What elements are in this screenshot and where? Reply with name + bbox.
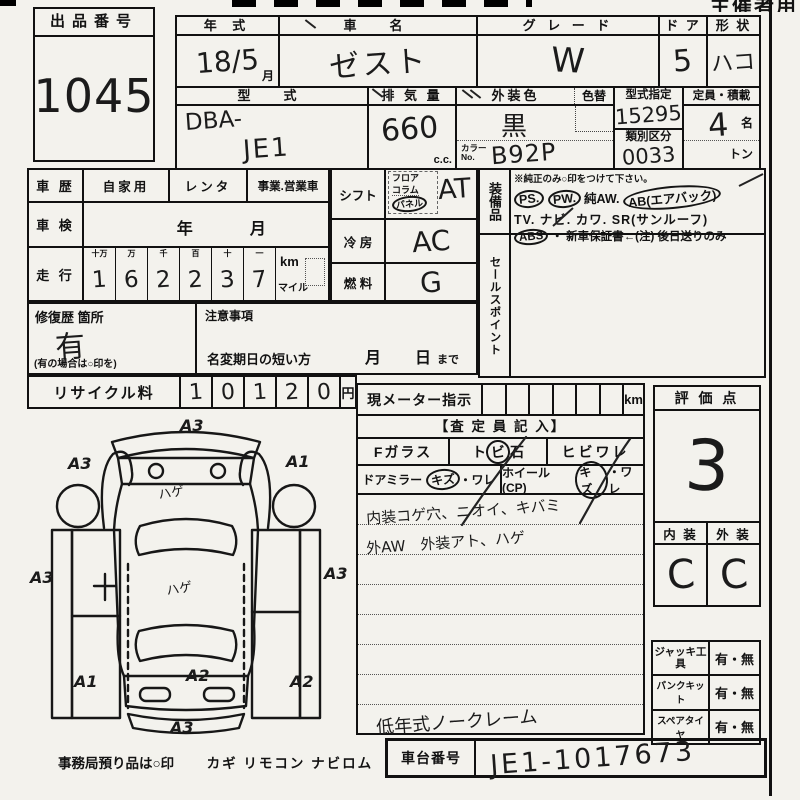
year-unit: 月 (262, 67, 274, 84)
grade-value: W (550, 40, 586, 82)
mileage-digit: 1 (91, 266, 107, 293)
door-value: 5 (672, 43, 693, 79)
color-cell: 外装色 色替 黒 カラーNo. B92P (457, 88, 615, 168)
shape-label: 形 状 (708, 17, 759, 36)
sales-point-box: セールスポイント (478, 235, 766, 378)
meter-label: 現メーター指示 (358, 385, 481, 414)
mileage-unit-checkbox (305, 258, 325, 286)
type-designation-cell: 型式指定 15295 類別区分 0033 (615, 88, 684, 168)
history-label: 車 歴 (29, 170, 84, 201)
history-table: 車 歴 自家用 レンタ 事業.営業車 車 検 年 月 走 行 十万 1 万 6 … (27, 168, 330, 302)
mirror-label: ドアミラー (362, 471, 422, 488)
color-no-value: B92P (490, 138, 557, 170)
color-label: 外装色 (457, 88, 574, 104)
rating-value: 3 (683, 424, 732, 508)
equipment-box: 装備品 ※純正のみ○印をつけて下さい。 PS. PW. 純AW. AB(エアバッ… (478, 168, 766, 235)
load-unit: トン (729, 145, 753, 162)
equipment-row-1: PS. PW. 純AW. AB(エアバック) (514, 186, 761, 209)
mileage-label: 走 行 (29, 248, 84, 300)
inspection-month: 月 (250, 215, 266, 239)
wheel-damage-circled: キズ (574, 459, 610, 500)
mileage-col-label: 十 (212, 248, 243, 259)
mileage-digit-cell: 十万 1 (84, 248, 116, 300)
history-commercial: 事業.営業車 (248, 170, 328, 201)
car-name-value: ゼスト (327, 36, 429, 87)
glass-label: Fガラス (358, 439, 450, 464)
recycle-digit: 0 (220, 379, 236, 405)
history-rental: レンタ (170, 170, 248, 201)
spec-row-1: 年 式 18/5 月 車 名 ゼスト グ レ ー ド W ド ア 5 (175, 15, 761, 88)
glass-opt-circled: ビ (485, 438, 511, 464)
inspection-year: 年 (177, 215, 193, 239)
rating-label: 評 価 点 (655, 387, 759, 411)
color-value: 黒 (501, 106, 527, 143)
recycle-label: リサイクル料 (29, 377, 181, 407)
recycle-digit-cell: 1 (181, 377, 213, 407)
type-designation-label: 型式指定 (615, 88, 682, 102)
mileage-digit-cell: 千 2 (148, 248, 180, 300)
displacement-cell: 排 気 量 660 c.c. (369, 88, 457, 168)
capacity-cell: 定員・積載 4 名 トン (684, 88, 759, 168)
mirror-damage-rest: ・ワレ (460, 471, 496, 488)
lot-label: 出品番号 (35, 9, 153, 37)
displacement-unit: c.c. (434, 154, 452, 166)
mileage-unit-cell: km マイル (276, 248, 328, 300)
year-label: 年 式 (177, 17, 278, 36)
model-value: JE1 (242, 132, 291, 165)
mileage-digit-cell: 百 2 (180, 248, 212, 300)
auction-sheet: 主催者用 出品番号 1045 年 式 18/5 月 車 名 ゼスト グ レ ー … (0, 0, 800, 800)
mileage-digit: 6 (123, 266, 139, 293)
history-private: 自家用 (84, 170, 170, 201)
grade-label: グ レ ー ド (478, 17, 658, 36)
recycle-row: リサイクル料 1 0 1 2 0 円 (27, 375, 357, 409)
caution-box: 注意事項 名変期日の短い方 月 日 まで (197, 302, 478, 375)
recycle-digit: 1 (252, 379, 268, 405)
mileage-digit: 2 (187, 266, 203, 293)
jack-tools-label: ジャッキ工具 (653, 642, 710, 674)
equipment-navi: ナビ. (540, 213, 571, 227)
wheel-cell: ホイール(CP) キズ・ワレ (502, 466, 643, 493)
wheel-damage-rest: ・ワレ (608, 463, 643, 497)
shape-cell: 形 状 ハコ (708, 17, 759, 86)
glass-option-crack: ヒビワレ (548, 439, 643, 464)
interior-label: 内 装 (655, 523, 708, 543)
rating-box: 評 価 点 3 内 装 外 装 C C (653, 385, 761, 607)
mileage-col-label: 百 (180, 248, 211, 259)
mileage-col-label: 千 (148, 248, 179, 259)
mileage-digit-cell: 一 7 (244, 248, 276, 300)
shape-value: ハコ (710, 44, 756, 79)
mileage-digit: 2 (155, 266, 171, 293)
mileage-digit: 7 (251, 266, 267, 293)
assessor-box: 現メーター指示 km 【査 定 員 記 入】 Fガラス トビ石 ヒビワレ ドアミ… (356, 383, 645, 735)
caution-line: 名変期日の短い方 (207, 349, 311, 368)
mileage-digit-cell: 万 6 (116, 248, 148, 300)
equipment-pw: PW. (547, 189, 581, 210)
office-items: カギ リモコン ナビロム (207, 756, 374, 771)
mileage-col-label: 一 (244, 248, 275, 259)
assessor-note-bottom: 低年式ノークレーム (375, 702, 538, 739)
equipment-tv: TV. (514, 213, 535, 227)
damage-mark-upper-right: A1 (286, 452, 310, 471)
assessor-title: 【査 定 員 記 入】 (358, 416, 643, 439)
equipment-note: ※純正のみ○印をつけて下さい。 (514, 171, 761, 185)
glass-opt-pre: ト (472, 442, 486, 462)
equipment-sr: SR(サンルーフ) (612, 213, 708, 227)
meter-cell (528, 385, 552, 414)
mileage-col-label: 十万 (84, 248, 115, 259)
color-change-box (575, 106, 613, 132)
interior-value: C (665, 551, 696, 599)
caution-month: 月 (365, 344, 381, 368)
glass-opt-post: 石 (510, 442, 524, 462)
capacity-label: 定員・積載 (684, 88, 759, 106)
puncture-kit-value: 有・無 (710, 676, 759, 708)
car-damage-diagram: A3 A3 A1 A3 A3 A1 A2 A2 A3 ハゲ ハゲ (28, 416, 348, 748)
caution-until: まで (437, 351, 459, 367)
chassis-label: 車台番号 (388, 741, 476, 775)
shift-opt-panel: パネル (391, 195, 427, 214)
damage-mark-trunk: A2 (186, 666, 210, 685)
meter-cell (505, 385, 529, 414)
clipped-title-marks (232, 0, 532, 7)
type-designation-value: 15295 (614, 101, 682, 130)
spec-row-2: 型 式 DBA- JE1 排 気 量 660 c.c. 外装色 色替 黒 (175, 88, 761, 170)
caution-label: 注意事項 (197, 304, 476, 324)
equipment-label: 装備品 (485, 182, 504, 221)
recycle-digit-cell: 2 (277, 377, 309, 407)
recycle-digit-cell: 0 (213, 377, 245, 407)
shift-opt-column: コラム (392, 185, 419, 196)
damage-mark-lower-right: A2 (290, 672, 314, 691)
recycle-digit-cell: 0 (309, 377, 341, 407)
damage-mark-upper-left: A3 (68, 454, 92, 473)
meter-cell (552, 385, 576, 414)
sales-point-label: セールスポイント (487, 256, 503, 356)
classification-value: 0033 (621, 142, 676, 170)
corner-smudge (0, 0, 16, 6)
year-cell: 年 式 18/5 月 (177, 17, 280, 86)
recycle-unit: 円 (341, 377, 355, 407)
office-note: 事務局預り品は○印 (58, 756, 174, 771)
ac-label: 冷 房 (332, 220, 386, 262)
meter-unit: km (622, 385, 643, 414)
mileage-unit-mile: マイル (278, 279, 308, 294)
equipment-ps: PS. (513, 189, 545, 210)
shift-label: シフト (332, 170, 386, 218)
damage-mark-lower-left: A1 (74, 672, 98, 691)
ac-value: AC (411, 223, 451, 259)
top-right-clip: 主催者用 (710, 0, 798, 12)
capacity-unit: 名 (741, 114, 753, 131)
capacity-value: 4 (707, 105, 730, 144)
top-right-clip-label: 主催者用 (710, 0, 798, 12)
chassis-row: 車台番号 JE1-1017673 (385, 738, 767, 778)
caution-day: 日 (415, 344, 431, 368)
exterior-label: 外 装 (708, 523, 759, 543)
mirror-cell: ドアミラー キズ・ワレ (358, 466, 502, 493)
model-cell: 型 式 DBA- JE1 (177, 88, 369, 168)
damage-mark-bottom: A3 (170, 718, 194, 737)
recycle-digit-cell: 1 (245, 377, 277, 407)
recycle-digit: 0 (316, 379, 332, 405)
damage-mark-mid-left: A3 (30, 568, 54, 587)
mileage-digit: 3 (219, 266, 235, 293)
shift-opt-floor: フロア (392, 173, 419, 183)
car-name-cell: 車 名 ゼスト (280, 17, 478, 86)
fuel-label: 燃 料 (332, 264, 386, 300)
tools-table: ジャッキ工具 有・無 パンクキット 有・無 スペアタイヤ 有・無 (651, 640, 761, 745)
assessor-notes-area: 内装コゲ穴、ニオイ、キバミ 外AW 外装アト、ハゲ 低年式ノークレーム (358, 495, 643, 738)
model-label: 型 式 (177, 88, 367, 106)
car-name-label: 車 名 (280, 17, 476, 36)
office-note-row: 事務局預り品は○印 カギ リモコン ナビロム (58, 752, 398, 773)
glass-option-stone: トビ石 (450, 439, 548, 464)
recycle-digit: 2 (284, 379, 300, 405)
equipment-row-2: TV. ナビ. カワ. SR(サンルーフ) (514, 209, 761, 228)
lot-number: 1045 (33, 69, 154, 123)
recycle-digit: 1 (188, 379, 204, 405)
repair-box: 修復歴 箇所 有 (有の場合は○印を) (27, 302, 197, 375)
mileage-unit-km: km (280, 254, 299, 269)
grade-cell: グ レ ー ド W (478, 17, 660, 86)
door-label: ド ア (660, 17, 706, 36)
repair-note: (有の場合は○印を) (34, 355, 117, 370)
capacity-divider (684, 140, 759, 141)
damage-mark-top: A3 (180, 416, 204, 435)
damage-mark-mid-right: A3 (324, 564, 348, 583)
shift-value: AT (437, 173, 472, 206)
mileage-col-label: 万 (116, 248, 147, 259)
mileage-digit-cell: 十 3 (212, 248, 244, 300)
fuel-value: G (419, 265, 443, 299)
wheel-label: ホイール(CP) (502, 464, 572, 495)
year-value: 18/5 (195, 42, 260, 79)
exterior-value: C (718, 551, 749, 599)
meter-cell (575, 385, 599, 414)
door-cell: ド ア 5 (660, 17, 708, 86)
lot-box: 出品番号 1045 (33, 7, 155, 162)
inspection-label: 車 検 (29, 203, 84, 246)
sales-point-content (511, 235, 764, 376)
puncture-kit-label: パンクキット (653, 676, 710, 708)
meter-cell (481, 385, 505, 414)
meter-cell (599, 385, 623, 414)
equipment-aw: 純AW. (584, 192, 619, 206)
jack-tools-value: 有・無 (710, 642, 759, 674)
equipment-kawa: カワ. (576, 213, 607, 227)
color-no-label: カラーNo. (461, 144, 487, 163)
model-prefix: DBA- (184, 106, 243, 136)
color-change-label: 色替 (574, 88, 613, 104)
controls-table: シフト フロア コラム パネル AT 冷 房 AC 燃 料 G (330, 168, 478, 302)
chassis-value: JE1-1017673 (489, 735, 696, 780)
displacement-value: 660 (380, 110, 440, 149)
shift-options-box: フロア コラム パネル (388, 171, 438, 214)
page-right-border (769, 0, 772, 796)
mirror-damage-circled: キズ (425, 468, 461, 492)
